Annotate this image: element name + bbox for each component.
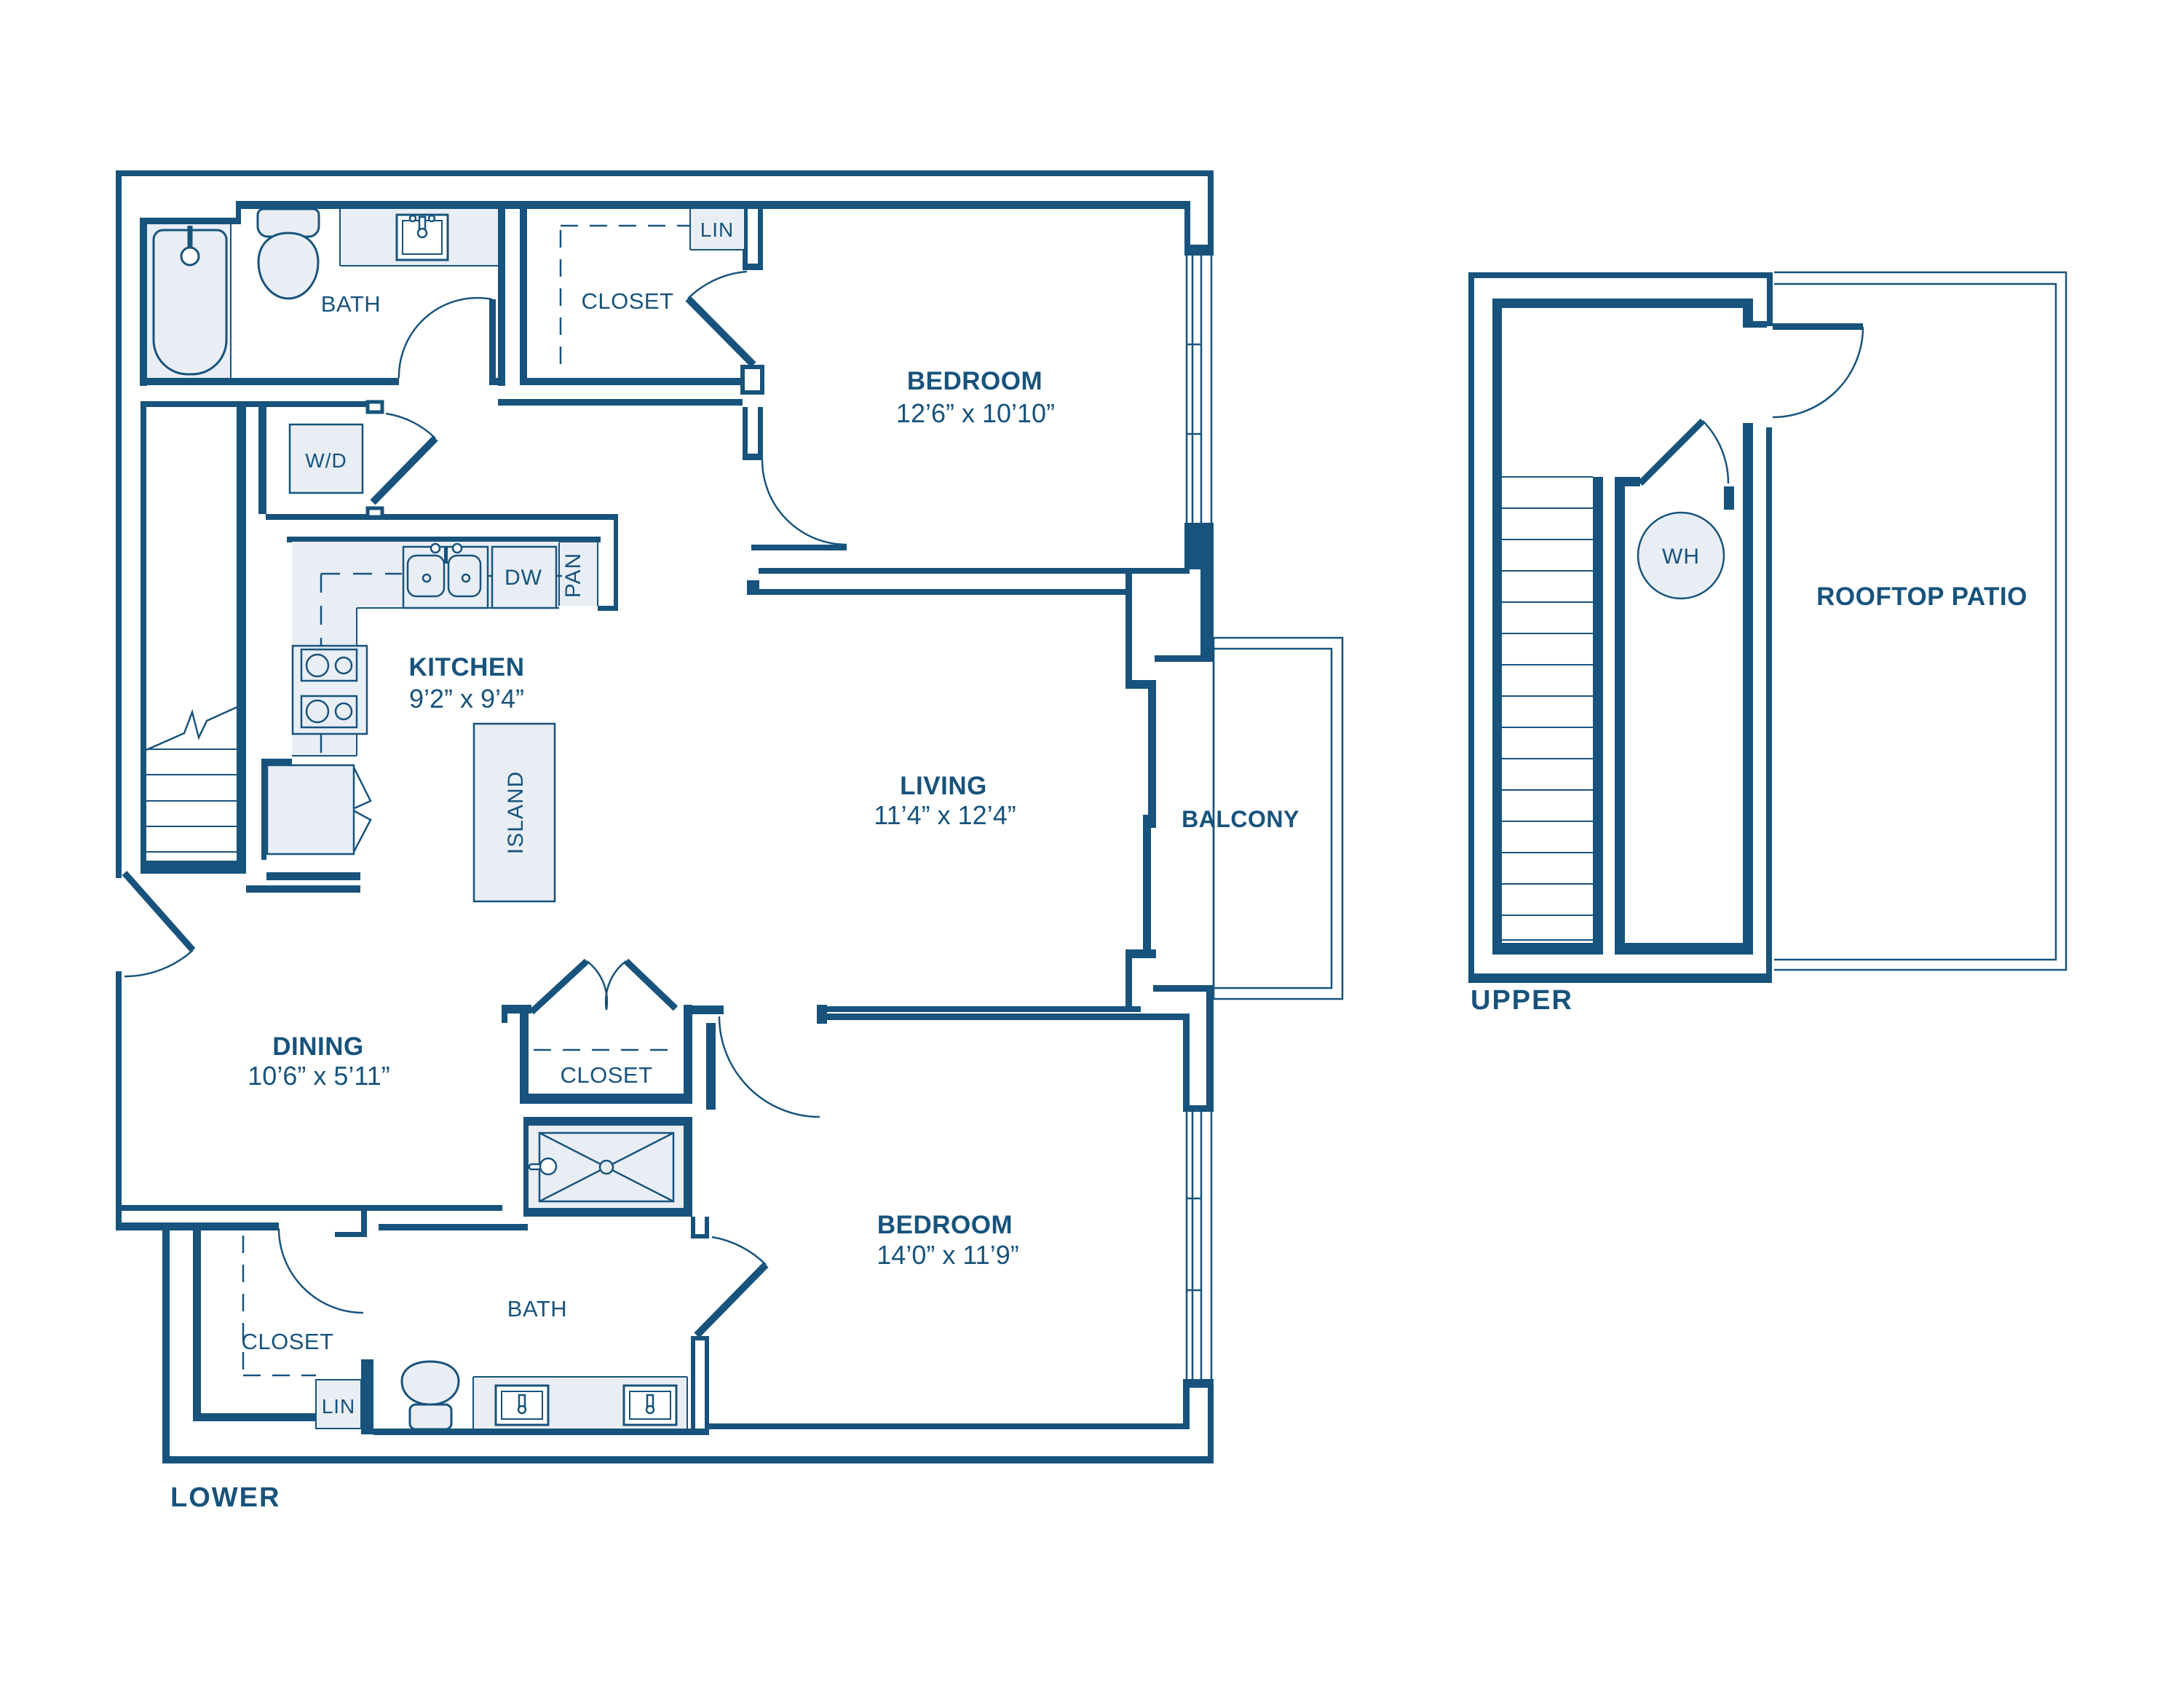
svg-text:14’0” x 11’9”: 14’0” x 11’9” — [877, 1240, 1018, 1270]
svg-text:BATH: BATH — [321, 291, 381, 317]
svg-text:W/D: W/D — [305, 449, 347, 472]
svg-text:KITCHEN: KITCHEN — [408, 653, 524, 681]
svg-text:LOWER: LOWER — [170, 1482, 280, 1513]
svg-text:ROOFTOP PATIO: ROOFTOP PATIO — [1816, 582, 2027, 611]
svg-text:11’4” x 12’4”: 11’4” x 12’4” — [874, 800, 1016, 830]
svg-text:10’6” x 5’11”: 10’6” x 5’11” — [248, 1061, 389, 1091]
svg-text:DINING: DINING — [272, 1032, 364, 1061]
svg-text:PAN: PAN — [561, 553, 585, 598]
svg-text:CLOSET: CLOSET — [581, 288, 673, 314]
svg-text:LIN: LIN — [322, 1395, 356, 1418]
svg-text:BALCONY: BALCONY — [1182, 806, 1299, 832]
svg-text:DW: DW — [505, 566, 542, 590]
svg-text:CLOSET: CLOSET — [560, 1062, 652, 1088]
svg-text:BATH: BATH — [507, 1296, 567, 1321]
svg-text:BEDROOM: BEDROOM — [907, 367, 1042, 395]
svg-text:UPPER: UPPER — [1471, 985, 1573, 1016]
svg-text:9’2” x 9’4”: 9’2” x 9’4” — [409, 684, 524, 714]
svg-text:LIN: LIN — [700, 218, 735, 241]
svg-text:WH: WH — [1662, 545, 1700, 569]
svg-text:ISLAND: ISLAND — [504, 771, 528, 854]
svg-text:CLOSET: CLOSET — [241, 1329, 333, 1354]
svg-text:12’6” x 10’10”: 12’6” x 10’10” — [896, 398, 1055, 428]
svg-text:LIVING: LIVING — [900, 772, 987, 800]
svg-text:BEDROOM: BEDROOM — [877, 1211, 1013, 1239]
